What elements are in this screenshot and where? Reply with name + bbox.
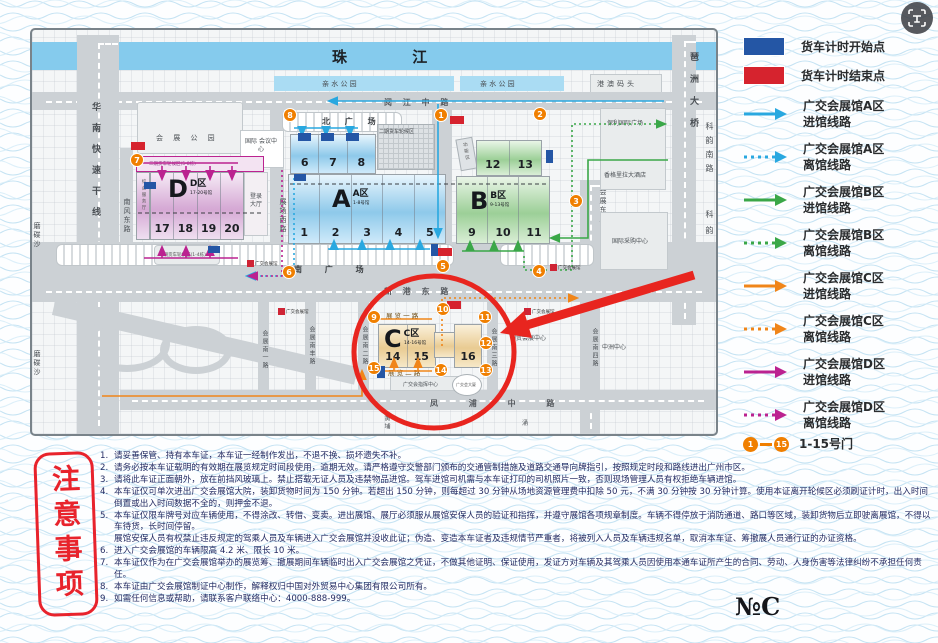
legend-item-end: 货车计时结束点 xyxy=(743,66,885,85)
highlight-arrow-shaft xyxy=(527,275,694,325)
notice-title: 注意事项 xyxy=(44,463,89,604)
arrow-solid-magenta-icon xyxy=(743,366,787,378)
arrow-dashed-green-icon xyxy=(743,237,787,249)
legend-item-a-in: 广交会展馆A区进馆线路 xyxy=(743,98,884,130)
scan-icon[interactable] xyxy=(901,2,933,34)
start-point-swatch xyxy=(743,37,785,56)
arrow-solid-orange-icon xyxy=(743,280,787,292)
legend-item-gates: 1 15 1-15号门 xyxy=(743,436,853,452)
arrow-dashed-orange-icon xyxy=(743,323,787,335)
legend-item-d-out: 广交会展馆D区离馆线路 xyxy=(743,399,885,431)
arrow-dashed-blue-icon xyxy=(743,151,787,163)
notes-list: 1.请妥善保管、持有本车证，本车证一经制作发出，不退不换、损坏遗失不补。 2.请… xyxy=(100,451,934,606)
legend-item-c-in: 广交会展馆C区进馆线路 xyxy=(743,270,884,302)
note-item-7: 7.本车证仅作为在广交会展馆举办的展览筹、撤展期间车辆临时出入广交会展馆之凭证，… xyxy=(100,558,934,582)
highlight-circle xyxy=(354,276,514,428)
gate-icon: 15 xyxy=(774,437,789,452)
legend-item-d-in: 广交会展馆D区进馆线路 xyxy=(743,356,885,388)
note-item-6: 6.进入广交会展馆的车辆限高 4.2 米、限长 10 米。 xyxy=(100,546,934,558)
route-map: 珠 江 亲 水 公 园 亲 水 公 园 港澳码头 阅 江 中 路 华南快速干线 … xyxy=(30,28,718,436)
gate-range-dash xyxy=(760,443,772,446)
note-item-9: 9.如需任何信息或帮助，请联系客户联络中心：4000-888-999。 xyxy=(100,594,934,606)
note-item-8: 8.本车证由广交会展馆制证中心制作，解释权归中国对外贸易中心集团有限公司所有。 xyxy=(100,582,934,594)
legend-item-start: 货车计时开始点 xyxy=(743,37,885,56)
note-item-5: 5.本车证仅限车牌号对应车辆使用，不得涂改、转借、变卖。进出展馆、展厅必须服从展… xyxy=(100,511,934,547)
legend-item-b-out: 广交会展馆B区离馆线路 xyxy=(743,227,884,259)
end-point-swatch xyxy=(743,66,785,85)
c-zone-highlight xyxy=(32,30,716,434)
arrow-solid-green-icon xyxy=(743,194,787,206)
legend-item-c-out: 广交会展馆C区离馆线路 xyxy=(743,313,884,345)
note-item-2: 2.请务必按本车证载明的有效期在展览规定时间段使用，逾期无效。请严格遵守交警部门… xyxy=(100,463,934,475)
legend-item-b-in: 广交会展馆B区进馆线路 xyxy=(743,184,884,216)
note-item-3: 3.请将此车证正面朝外，放在前挡风玻璃上。禁止搭载无证人员及违禁物品进馆。驾车进… xyxy=(100,475,934,487)
note-item-1: 1.请妥善保管、持有本车证，本车证一经制作发出，不退不换、损坏遗失不补。 xyxy=(100,451,934,463)
notice-title-box: 注意事项 xyxy=(33,451,99,617)
legend-item-a-out: 广交会展馆A区离馆线路 xyxy=(743,141,884,173)
arrow-solid-blue-icon xyxy=(743,108,787,120)
gate-icon: 1 xyxy=(743,437,758,452)
area-c-mark: №C xyxy=(735,592,780,621)
note-item-4: 4.本车证仅可单次进出广交会展馆大院，装卸货物时间为 150 分钟。若超出 15… xyxy=(100,487,934,511)
arrow-dashed-magenta-icon xyxy=(743,409,787,421)
